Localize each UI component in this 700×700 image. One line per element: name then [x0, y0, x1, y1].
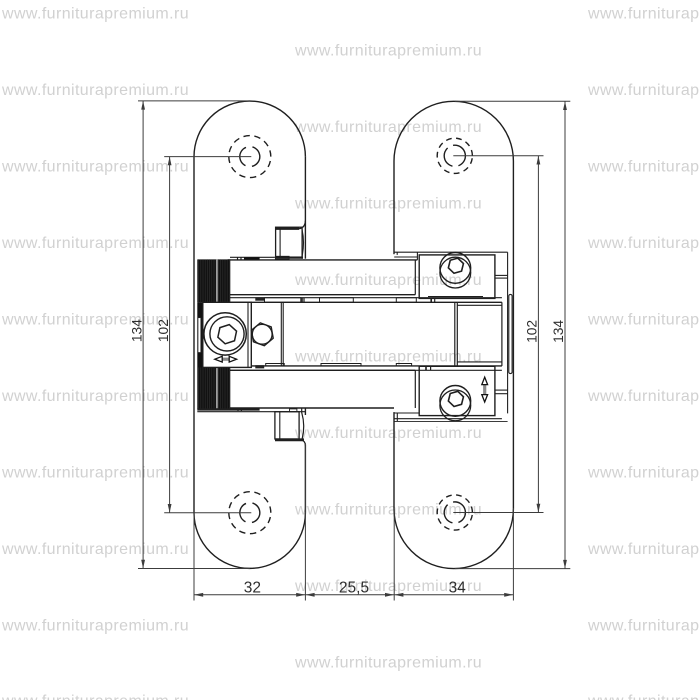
svg-text:25,5: 25,5 [339, 580, 369, 597]
svg-text:www.furniturapremium.ru: www.furniturapremium.ru [1, 388, 189, 405]
svg-text:32: 32 [244, 580, 261, 597]
svg-text:www.furniturapremium.ru: www.furniturapremium.ru [294, 43, 482, 60]
svg-text:102: 102 [525, 320, 540, 343]
svg-text:www.furniturapremium.ru: www.furniturapremium.ru [294, 502, 482, 519]
svg-text:www.furniturapremium.ru: www.furniturapremium.ru [1, 618, 189, 635]
svg-text:www.furniturapremium.ru: www.furniturapremium.ru [587, 618, 700, 635]
svg-text:www.furniturapremium.ru: www.furniturapremium.ru [294, 272, 482, 289]
svg-text:www.furniturapremium.ru: www.furniturapremium.ru [294, 196, 482, 213]
svg-text:34: 34 [449, 580, 467, 597]
svg-text:www.furniturapremium.ru: www.furniturapremium.ru [587, 312, 700, 329]
svg-text:www.furniturapremium.ru: www.furniturapremium.ru [294, 119, 482, 136]
svg-text:www.furniturapremium.ru: www.furniturapremium.ru [1, 235, 189, 252]
svg-text:www.furniturapremium.ru: www.furniturapremium.ru [1, 6, 189, 23]
svg-text:134: 134 [129, 319, 144, 342]
svg-text:www.furniturapremium.ru: www.furniturapremium.ru [294, 349, 482, 366]
svg-text:www.furniturapremium.ru: www.furniturapremium.ru [587, 693, 700, 700]
svg-text:www.furniturapremium.ru: www.furniturapremium.ru [587, 465, 700, 482]
svg-text:www.furniturapremium.ru: www.furniturapremium.ru [1, 82, 189, 99]
svg-text:www.furniturapremium.ru: www.furniturapremium.ru [1, 693, 189, 700]
svg-text:www.furniturapremium.ru: www.furniturapremium.ru [294, 655, 482, 672]
svg-text:www.furniturapremium.ru: www.furniturapremium.ru [1, 465, 189, 482]
svg-text:www.furniturapremium.ru: www.furniturapremium.ru [587, 159, 700, 176]
svg-text:www.furniturapremium.ru: www.furniturapremium.ru [587, 235, 700, 252]
svg-text:134: 134 [551, 320, 566, 343]
svg-text:www.furniturapremium.ru: www.furniturapremium.ru [587, 6, 700, 23]
svg-text:www.furniturapremium.ru: www.furniturapremium.ru [294, 425, 482, 442]
svg-text:www.furniturapremium.ru: www.furniturapremium.ru [587, 388, 700, 405]
svg-text:www.furniturapremium.ru: www.furniturapremium.ru [1, 159, 189, 176]
svg-text:www.furniturapremium.ru: www.furniturapremium.ru [587, 82, 700, 99]
svg-text:www.furniturapremium.ru: www.furniturapremium.ru [1, 541, 189, 558]
svg-text:www.furniturapremium.ru: www.furniturapremium.ru [587, 541, 700, 558]
svg-text:102: 102 [156, 319, 171, 342]
